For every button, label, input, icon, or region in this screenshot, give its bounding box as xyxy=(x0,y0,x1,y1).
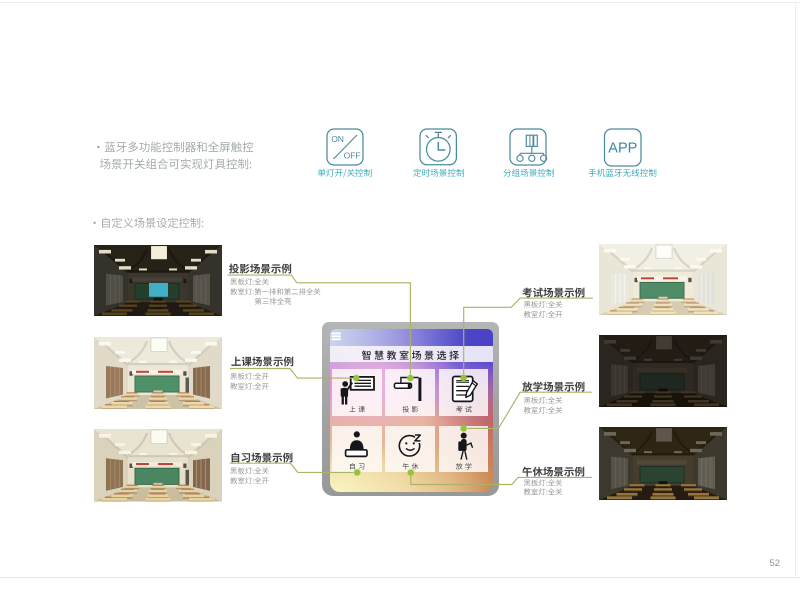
svg-text:APP: APP xyxy=(608,141,637,157)
svg-text:OFF: OFF xyxy=(344,151,361,161)
svg-text:ON: ON xyxy=(331,134,344,144)
